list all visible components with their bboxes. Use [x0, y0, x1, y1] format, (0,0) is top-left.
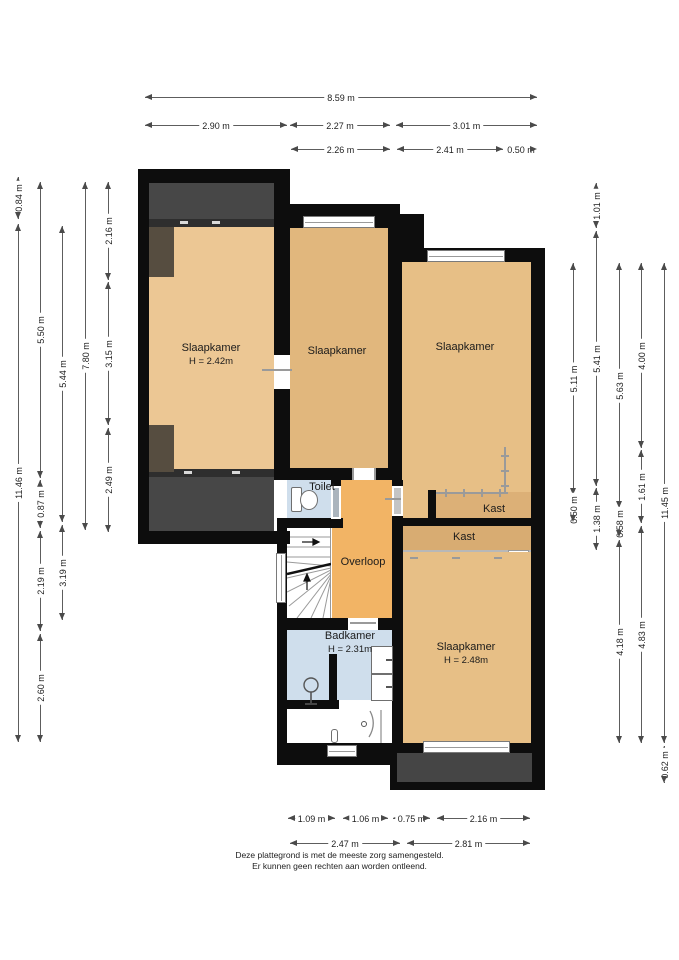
dimension-right: 11.45 m	[664, 263, 665, 743]
window	[423, 741, 510, 753]
door-arc-icon	[346, 708, 376, 740]
dimension-right: 1.38 m	[596, 488, 597, 550]
dimension-right: 0.62 m	[664, 746, 665, 783]
room-label: Slaapkamer	[436, 341, 495, 355]
dimension-right: 0.58 m	[619, 510, 620, 537]
floor-plan: Deze plattegrond is met de meeste zorg s…	[0, 0, 679, 960]
roof-area-top	[149, 183, 274, 221]
dimension-left: 5.50 m	[40, 182, 41, 478]
shelf-tick	[499, 489, 501, 497]
room-overloop	[332, 480, 392, 618]
dimension-label: 2.19 m	[36, 564, 46, 598]
shower-icon	[300, 676, 322, 708]
dimension-bottom: 0.75 m	[393, 818, 430, 819]
room-slaapkamer-right	[400, 262, 531, 518]
door-opening	[274, 355, 290, 389]
wall	[428, 490, 436, 526]
dimension-right: 4.18 m	[619, 540, 620, 743]
dimension-bottom: 2.16 m	[437, 818, 530, 819]
window	[327, 745, 357, 757]
room-label: Kast	[483, 503, 505, 517]
dimension-top: 2.27 m	[290, 125, 390, 126]
room-label: Slaapkamer	[308, 345, 367, 359]
dimension-label: 3.15 m	[104, 337, 114, 371]
floor-mark	[494, 557, 502, 559]
dimension-bottom: 1.06 m	[343, 818, 388, 819]
room-label: SlaapkamerH = 2.48m	[437, 641, 496, 667]
dimension-label: 5.11 m	[569, 363, 579, 396]
dimension-label: 4.18 m	[615, 625, 625, 659]
dimension-label: 1.01 m	[592, 189, 602, 223]
dimension-top: 8.59 m	[145, 97, 537, 98]
dimension-right: 1.61 m	[641, 450, 642, 523]
sink-handle	[386, 686, 392, 688]
room-label: BadkamerH = 2.31m	[325, 630, 375, 656]
wall	[138, 531, 290, 544]
dimension-top: 2.41 m	[397, 149, 503, 150]
dimension-label: 7.80 m	[81, 339, 91, 373]
dimension-label: 0.50 m	[569, 493, 579, 527]
dimension-label: 1.61 m	[637, 470, 647, 504]
dimension-label: 5.50 m	[36, 313, 46, 347]
dimension-left: 3.15 m	[108, 282, 109, 425]
shelf-tick	[481, 489, 483, 497]
radiator-icon	[331, 729, 338, 743]
dimension-label: 0.84 m	[14, 181, 24, 215]
disclaimer-line1: Deze plattegrond is met de meeste zorg s…	[0, 850, 679, 861]
dimension-top: 2.90 m	[145, 125, 287, 126]
shelf-tick	[501, 470, 509, 472]
dimension-right: 4.83 m	[641, 526, 642, 743]
dimension-label: 0.75 m	[395, 814, 429, 824]
dimension-label: 5.63 m	[615, 369, 625, 403]
door-swing-line	[262, 369, 292, 371]
dimension-left: 0.84 m	[18, 177, 19, 219]
dimension-left: 2.49 m	[108, 428, 109, 532]
room-label: Kast	[453, 531, 475, 545]
dimension-label: 8.59 m	[324, 93, 358, 103]
dimension-left: 2.16 m	[108, 182, 109, 280]
wall	[531, 248, 545, 765]
dimension-label: 4.83 m	[637, 618, 647, 652]
shelf-tick	[463, 489, 465, 497]
dimension-label: 5.41 m	[592, 342, 602, 376]
roof-area-bottom-right	[397, 753, 532, 782]
dimension-label: 2.90 m	[199, 121, 233, 131]
dimension-label: 11.46 m	[14, 464, 24, 502]
dormer-top	[149, 227, 174, 277]
room-label: SlaapkamerH = 2.42m	[182, 342, 241, 368]
dimension-label: 2.27 m	[323, 121, 357, 131]
dimension-label: 2.81 m	[452, 839, 486, 849]
vent-mark	[212, 221, 220, 224]
shelf-tick	[501, 485, 509, 487]
dimension-label: 2.49 m	[104, 463, 114, 497]
dimension-left: 5.44 m	[62, 226, 63, 522]
roof-area-bottom	[149, 477, 274, 531]
dimension-label: 1.06 m	[349, 814, 383, 824]
window	[276, 553, 286, 603]
sink-handle	[386, 659, 392, 661]
room-label: Overloop	[341, 556, 386, 570]
door-jamb	[352, 468, 354, 480]
dimension-left: 7.80 m	[85, 182, 86, 530]
dimension-label: 0.50 m	[504, 145, 538, 155]
dimension-right: 4.00 m	[641, 263, 642, 448]
hall-divider	[380, 709, 382, 743]
wall	[329, 654, 337, 704]
dimension-left: 2.19 m	[40, 531, 41, 631]
dimension-label: 0.58 m	[615, 507, 625, 541]
door-leaf	[394, 488, 401, 514]
dimension-label: 11.45 m	[660, 484, 670, 522]
dimension-top: 0.50 m	[505, 149, 537, 150]
dimension-right: 1.01 m	[596, 183, 597, 228]
dimension-right: 5.63 m	[619, 263, 620, 508]
dimension-right: 5.11 m	[573, 263, 574, 495]
dimension-bottom: 2.47 m	[290, 843, 400, 844]
door-opening	[348, 618, 378, 630]
vent-mark	[232, 471, 240, 474]
shelf-tick	[445, 489, 447, 497]
vent-mark	[180, 221, 188, 224]
dimension-right: 5.41 m	[596, 231, 597, 486]
door-leaf	[350, 622, 376, 624]
dimension-label: 5.44 m	[58, 357, 68, 391]
room-slaapkamer-mid	[288, 217, 388, 468]
dimension-label: 2.16 m	[104, 214, 114, 248]
floor-mark	[452, 557, 460, 559]
dimension-right: 0.50 m	[573, 497, 574, 522]
dimension-label: 4.00 m	[637, 339, 647, 373]
wall	[138, 169, 149, 544]
window	[427, 250, 505, 262]
dimension-label: 3.19 m	[58, 556, 68, 590]
dimension-top: 2.26 m	[291, 149, 390, 150]
dimension-label: 1.38 m	[592, 502, 602, 536]
dimension-left: 3.19 m	[62, 525, 63, 620]
vent-mark	[184, 471, 192, 474]
dormer-bottom	[149, 425, 174, 472]
door-swing-line	[385, 498, 401, 500]
wall	[277, 618, 402, 630]
stairs-icon	[287, 528, 331, 618]
floor-mark	[410, 557, 418, 559]
door-jamb	[374, 468, 376, 480]
disclaimer: Deze plattegrond is met de meeste zorg s…	[0, 850, 679, 873]
dimension-left: 11.46 m	[18, 224, 19, 742]
window	[303, 216, 375, 228]
dimension-label: 2.41 m	[433, 145, 467, 155]
wall	[138, 169, 290, 183]
dimension-label: 2.16 m	[467, 814, 501, 824]
dimension-bottom: 1.09 m	[288, 818, 335, 819]
dimension-bottom: 2.81 m	[407, 843, 530, 844]
dimension-left: 2.60 m	[40, 634, 41, 742]
dimension-label: 0.87 m	[36, 487, 46, 521]
dimension-left: 0.87 m	[40, 480, 41, 528]
dimension-label: 3.01 m	[450, 121, 484, 131]
wall	[393, 518, 536, 526]
dimension-label: 2.47 m	[328, 839, 362, 849]
room-label: Toilet	[309, 481, 335, 495]
shelf-tick	[501, 455, 509, 457]
dimension-label: 2.60 m	[36, 671, 46, 705]
disclaimer-line2: Er kunnen geen rechten aan worden ontlee…	[0, 861, 679, 872]
dimension-label: 1.09 m	[295, 814, 329, 824]
door-opening	[352, 468, 376, 480]
dimension-label: 2.26 m	[324, 145, 358, 155]
dimension-label: 0.62 m	[660, 748, 670, 782]
dimension-top: 3.01 m	[396, 125, 537, 126]
